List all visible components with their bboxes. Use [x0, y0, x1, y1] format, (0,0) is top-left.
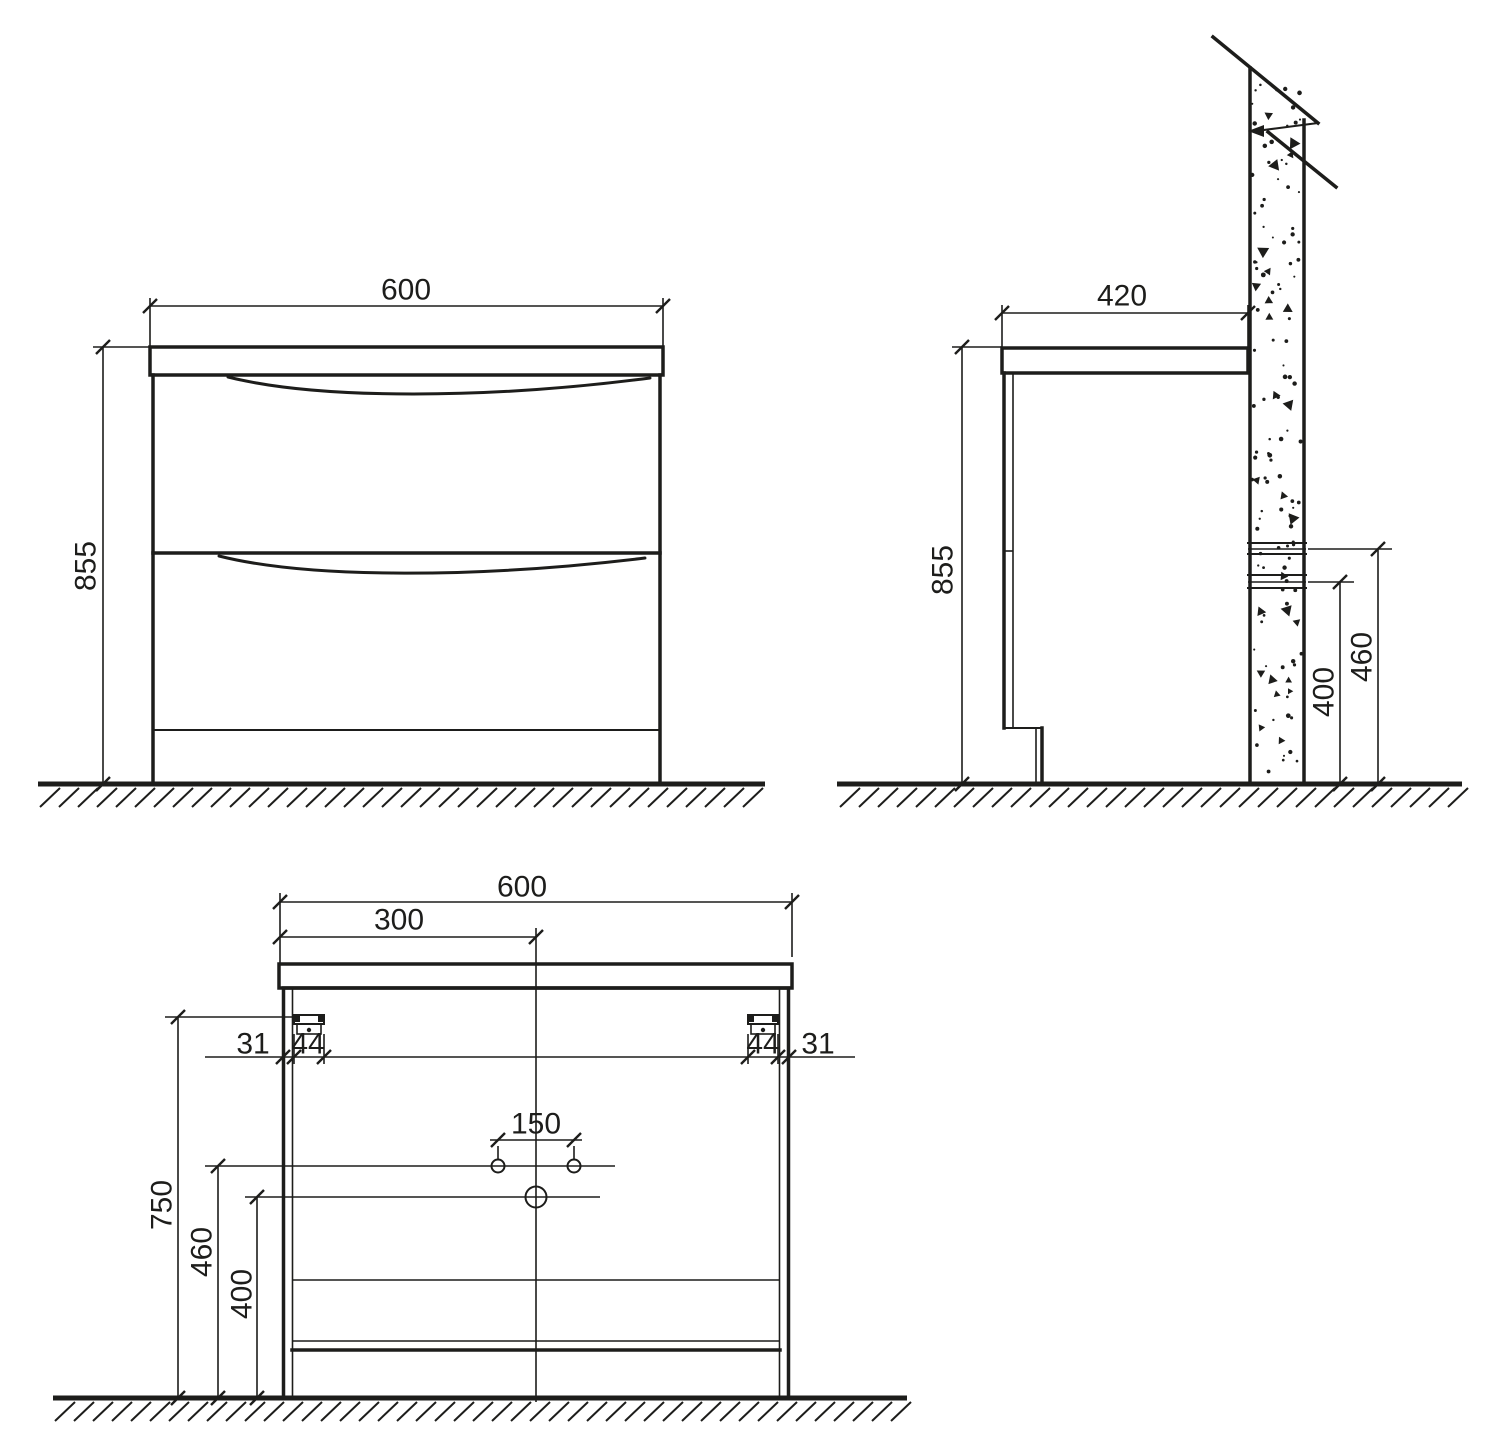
right-edge-gap-label: 31: [801, 1028, 834, 1061]
back-center-label: 300: [374, 904, 424, 937]
concrete-texture: [1250, 84, 1303, 774]
wall-break-fold: [1256, 123, 1318, 131]
bracket-screw: [749, 1016, 754, 1022]
front-width-dimension: 600: [150, 274, 663, 348]
side-outlet-dimensions: 460 400: [1308, 549, 1393, 784]
floor-hatch: [55, 1402, 911, 1421]
back-dim-ticks: [171, 895, 799, 1405]
front-height-dimension: 855: [70, 347, 151, 784]
bracket-screw: [772, 1016, 777, 1022]
back-width-label: 600: [497, 871, 547, 904]
left-edge-gap-label: 31: [236, 1028, 269, 1061]
front-view: 600 855: [38, 274, 765, 808]
faucet-spacing-label: 150: [511, 1108, 561, 1141]
back-view: 600 300: [53, 871, 911, 1422]
side-cabinet: [1002, 348, 1248, 784]
side-depth-label: 420: [1097, 280, 1147, 313]
bracket-dimension: 31 44 44 31: [205, 1028, 855, 1061]
front-height-label: 855: [70, 541, 103, 591]
floor-hatch: [40, 788, 763, 807]
back-height-dimensions: 750 460 400: [146, 1017, 294, 1398]
right-bracket-width-label: 44: [746, 1028, 779, 1061]
front-dim-ticks: [96, 299, 670, 791]
bracket-height-label: 750: [146, 1180, 179, 1230]
faucet-holes: 150: [205, 1108, 615, 1208]
floor-hatch: [840, 788, 1468, 807]
side-height-dimension: 855: [927, 347, 1003, 784]
front-width-label: 600: [381, 274, 431, 307]
drain-height-label: 400: [226, 1269, 259, 1319]
bracket-screw: [295, 1016, 300, 1022]
countertop: [150, 347, 663, 375]
back-floor: [53, 1398, 911, 1421]
upper-outlet: [1248, 543, 1306, 554]
bracket-screw: [318, 1016, 323, 1022]
side-height-label: 855: [927, 545, 960, 595]
vanity-installation-drawing: 600 855: [0, 0, 1505, 1456]
upper-drawer-handle-curve: [228, 377, 650, 394]
side-view: 420 855 460 400: [837, 37, 1468, 807]
front-cabinet: [150, 347, 663, 784]
side-depth-dimension: 420: [1002, 280, 1248, 349]
front-floor: [38, 784, 765, 807]
technical-drawing-page: 600 855: [0, 0, 1505, 1456]
side-upper-outlet-label: 460: [1346, 632, 1379, 682]
side-lower-outlet-label: 400: [1308, 667, 1341, 717]
countertop-profile: [1002, 348, 1248, 373]
supply-height-label: 460: [186, 1227, 219, 1277]
wall-break-line: [1213, 37, 1318, 123]
lower-outlet: [1248, 575, 1306, 588]
lower-drawer-handle-curve: [219, 556, 645, 573]
